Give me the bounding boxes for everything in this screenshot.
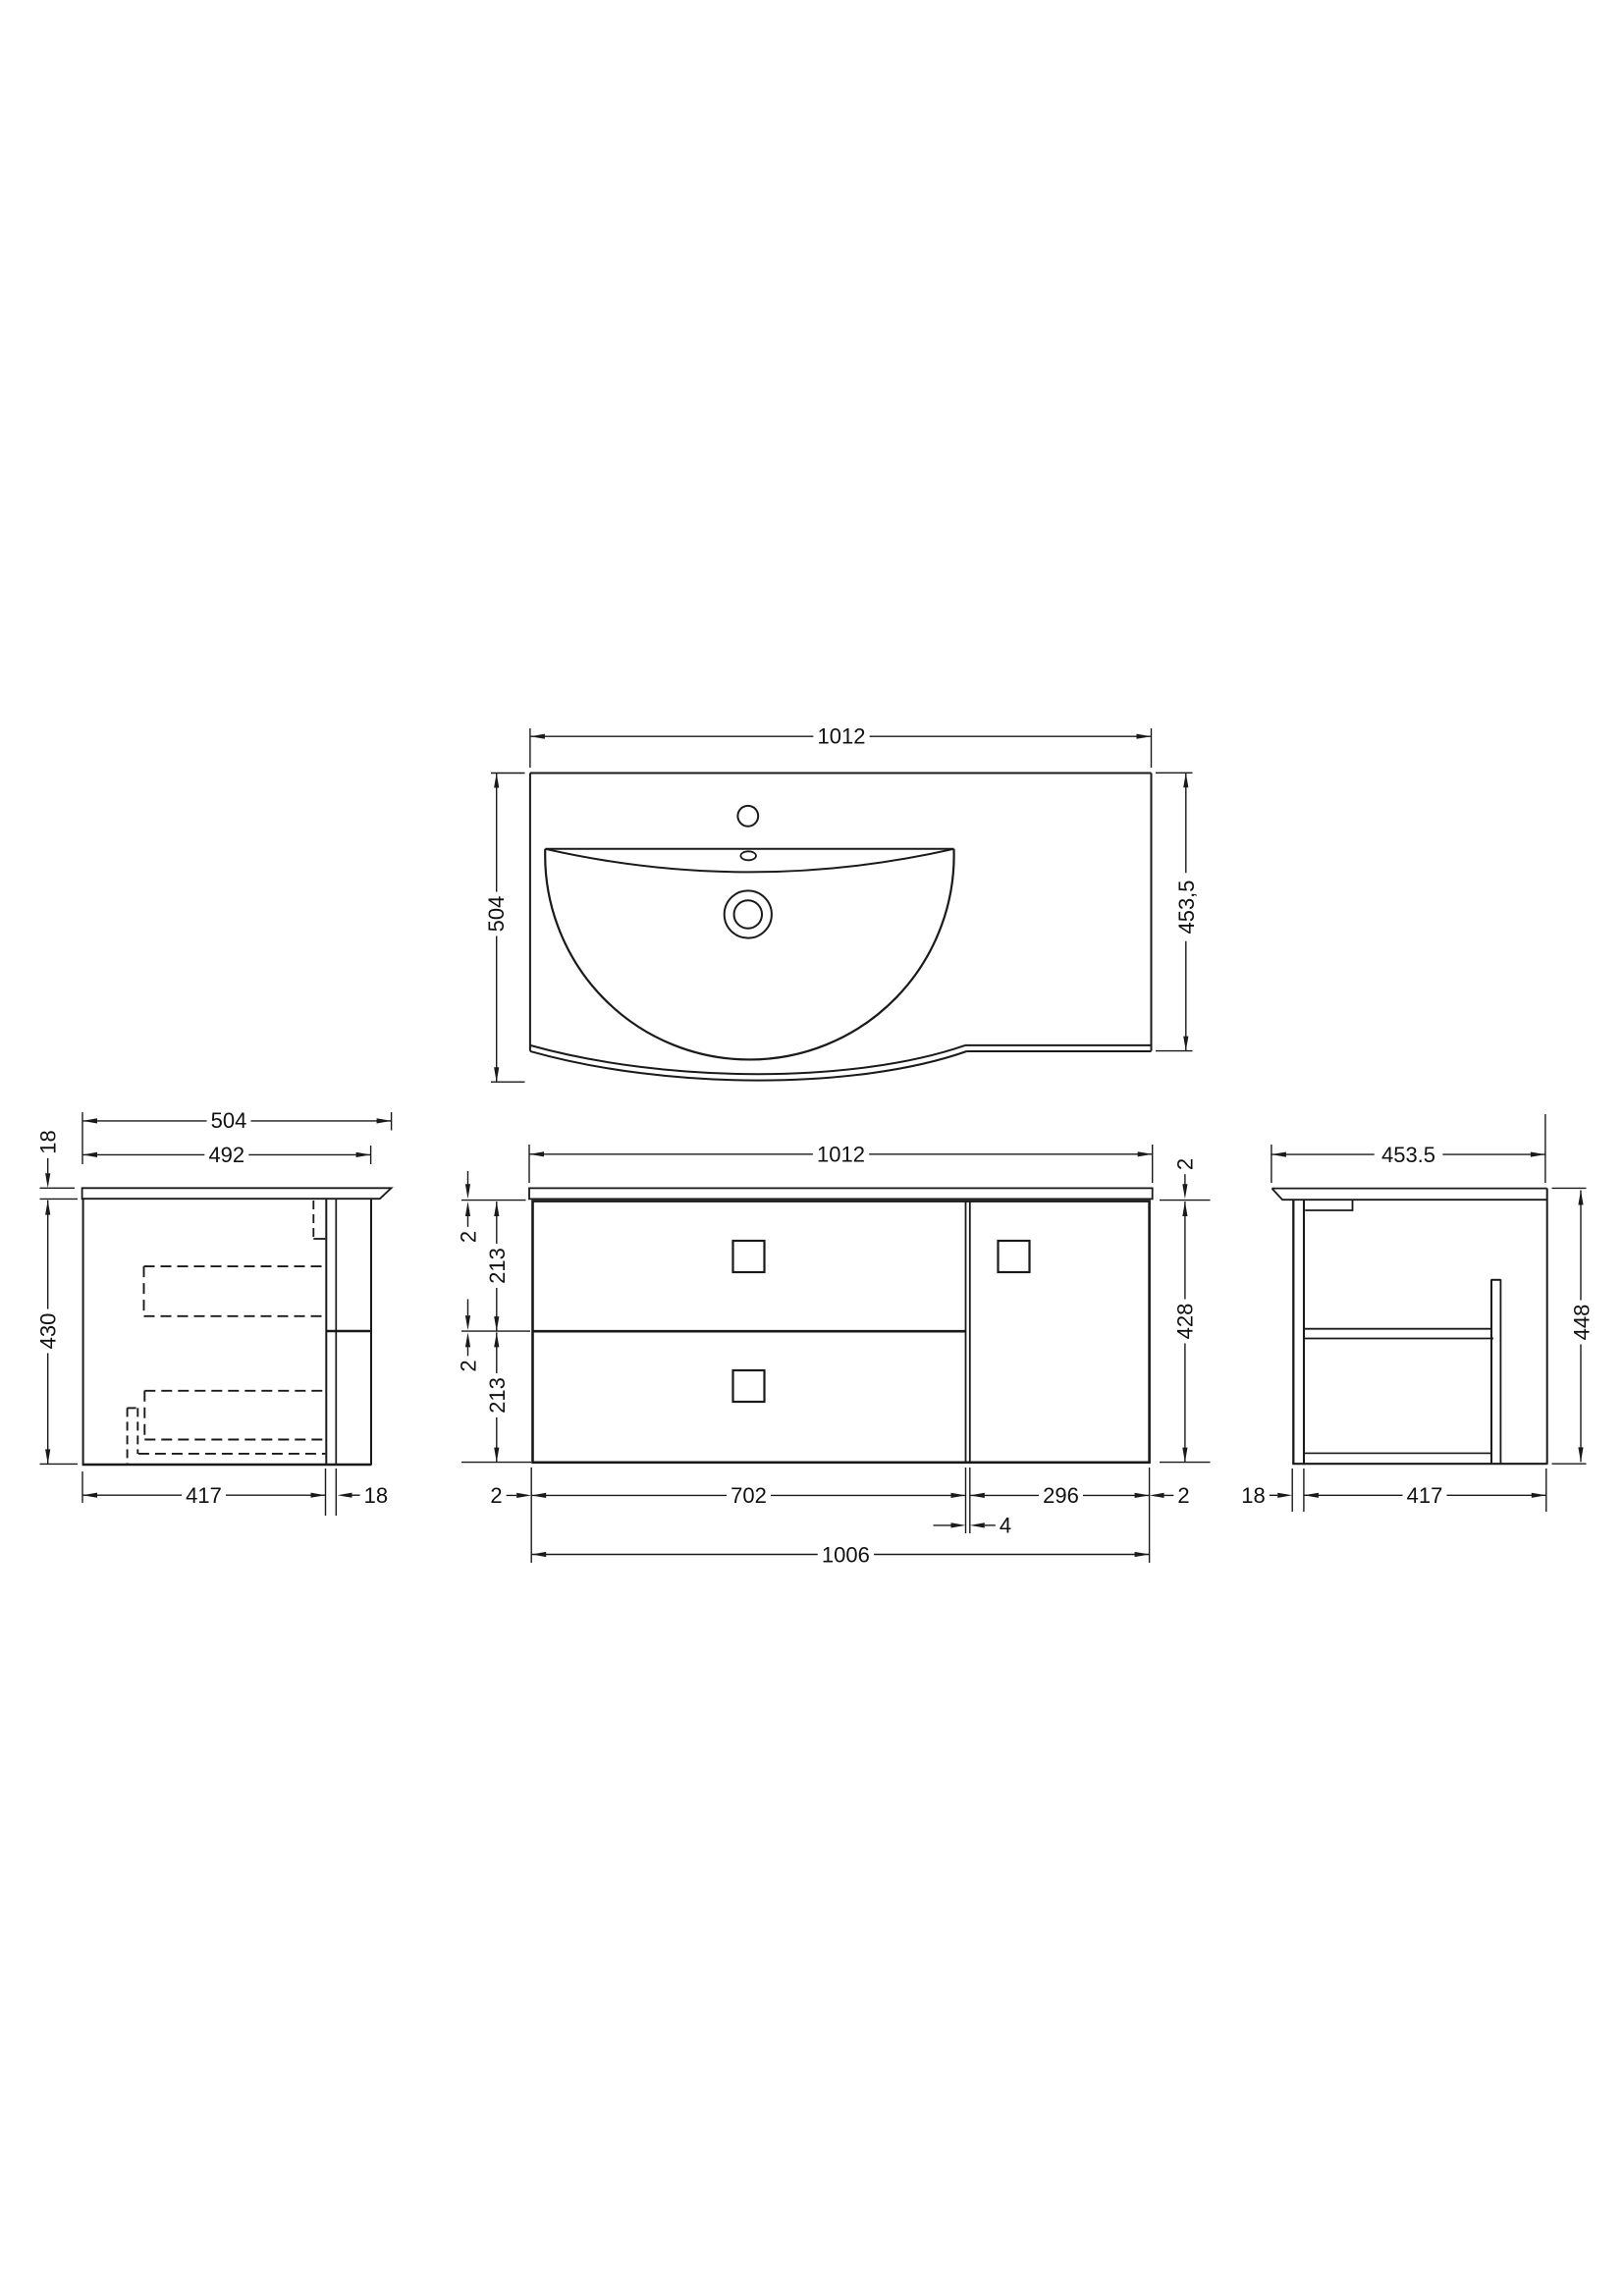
svg-text:1006: 1006: [822, 1542, 870, 1567]
svg-text:2: 2: [1177, 1483, 1189, 1508]
svg-text:492: 492: [208, 1143, 244, 1167]
svg-text:2: 2: [1173, 1158, 1198, 1170]
svg-text:430: 430: [36, 1313, 61, 1350]
svg-text:428: 428: [1173, 1304, 1198, 1340]
svg-text:504: 504: [484, 896, 509, 933]
svg-text:453.5: 453.5: [1381, 1143, 1435, 1167]
svg-text:2: 2: [456, 1360, 480, 1371]
svg-text:453,5: 453,5: [1174, 880, 1199, 934]
svg-text:1012: 1012: [818, 723, 866, 748]
svg-text:702: 702: [730, 1483, 767, 1508]
svg-text:18: 18: [1241, 1483, 1265, 1508]
svg-text:213: 213: [485, 1377, 510, 1414]
svg-text:2: 2: [490, 1483, 502, 1508]
svg-text:18: 18: [364, 1483, 388, 1508]
svg-text:296: 296: [1043, 1483, 1079, 1508]
svg-text:504: 504: [211, 1108, 247, 1133]
svg-text:417: 417: [186, 1483, 222, 1508]
svg-text:4: 4: [1000, 1514, 1011, 1538]
svg-text:2: 2: [456, 1231, 480, 1243]
svg-text:18: 18: [36, 1130, 61, 1153]
svg-text:448: 448: [1569, 1305, 1594, 1341]
svg-text:213: 213: [485, 1248, 510, 1284]
svg-text:1012: 1012: [817, 1142, 865, 1166]
svg-text:417: 417: [1407, 1483, 1443, 1508]
